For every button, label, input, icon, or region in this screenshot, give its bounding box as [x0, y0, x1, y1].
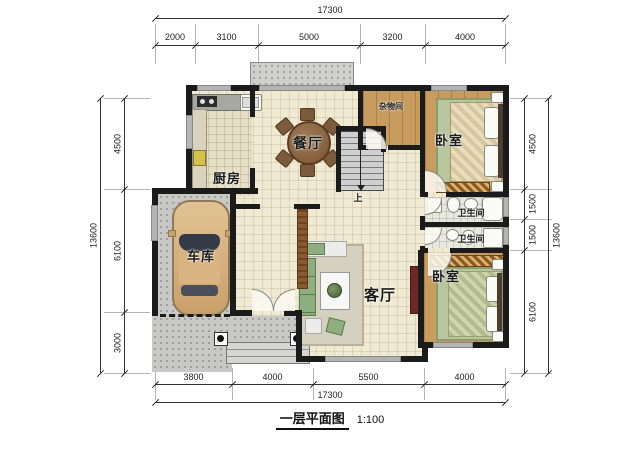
dim-top-seg2: 5000	[258, 32, 360, 42]
dim-bottom-seg0: 3800	[155, 372, 232, 382]
dim-right-seg0: 4500	[527, 98, 538, 189]
dim-bottom-seg3: 4000	[424, 372, 505, 382]
pillow	[484, 107, 499, 139]
headboard	[497, 273, 502, 333]
wall	[450, 248, 509, 253]
dining-chair	[300, 164, 315, 177]
wall	[294, 204, 320, 209]
dim-bottom-seg1: 4000	[232, 372, 313, 382]
dim-top-seg4: 4000	[425, 32, 505, 42]
cooktop-burner	[200, 99, 205, 104]
wall	[250, 168, 255, 194]
dim-line	[155, 18, 505, 19]
wall	[503, 85, 509, 348]
wall	[422, 342, 428, 362]
dim-left-seg2: 3000	[112, 312, 123, 373]
car-mirror	[168, 230, 176, 237]
dim-left-total: 13600	[88, 98, 99, 373]
dim-bottom-total: 17300	[155, 390, 505, 400]
wall	[446, 192, 509, 197]
wall	[418, 250, 424, 348]
extension-line	[104, 98, 150, 99]
dim-left-seg1: 6100	[112, 189, 123, 312]
window	[432, 86, 466, 90]
kitchen-appliance	[193, 150, 206, 166]
dim-line	[155, 402, 505, 403]
dining-chair	[300, 108, 315, 121]
wall	[296, 356, 330, 362]
wall	[420, 192, 428, 197]
plan-scale: 1:100	[357, 414, 385, 426]
dim-line	[548, 98, 549, 373]
wall	[420, 248, 428, 253]
extension-line	[104, 312, 150, 313]
porch-column	[217, 335, 224, 342]
label-kitchen: 厨房	[204, 168, 250, 187]
window	[504, 228, 508, 244]
dim-line	[524, 98, 525, 373]
car-rear-window	[181, 285, 218, 296]
wall	[236, 310, 252, 316]
label-bathroom-top: 卫生间	[442, 206, 500, 219]
dim-line	[155, 384, 505, 385]
label-dining: 餐厅	[277, 133, 339, 153]
wall	[425, 222, 509, 227]
dim-right-total: 13600	[551, 98, 562, 373]
wall	[358, 85, 363, 150]
dim-left-seg0: 4500	[112, 98, 123, 189]
window	[434, 343, 472, 347]
label-bathroom-bottom: 卫生间	[442, 232, 500, 245]
wall	[336, 126, 386, 131]
plant	[327, 283, 342, 298]
tick	[502, 399, 509, 406]
floor-plan: 17300 2000 3100 5000 3200 4000 13600 450…	[0, 0, 640, 453]
label-stairs-up: 上	[350, 191, 366, 204]
wall	[236, 204, 260, 209]
wall	[152, 188, 258, 194]
window	[187, 116, 192, 148]
label-bedroom-top: 卧室	[428, 130, 470, 149]
dim-line	[155, 45, 505, 46]
wood-pillar	[297, 209, 308, 289]
dim-top-total: 17300	[155, 5, 505, 15]
label-bedroom-bottom: 卧室	[424, 266, 468, 285]
window	[152, 206, 157, 240]
cooktop-burner	[209, 99, 214, 104]
window	[326, 357, 400, 361]
label-storage: 杂物间	[366, 101, 416, 112]
window	[504, 198, 508, 216]
extension-line	[104, 373, 150, 374]
dim-right-seg2: 1500	[527, 219, 538, 250]
dim-top-seg3: 3200	[360, 32, 425, 42]
dim-right-seg1: 1500	[527, 189, 538, 219]
exterior-patch	[428, 348, 508, 358]
wall	[230, 194, 236, 316]
armchair	[305, 318, 322, 334]
label-garage: 车库	[178, 246, 224, 265]
sofa-cushion	[307, 243, 325, 255]
wall	[296, 310, 302, 362]
plan-caption: 一层平面图 1:100	[155, 408, 505, 430]
dim-right-seg3: 6100	[527, 250, 538, 373]
dim-line	[100, 98, 101, 373]
dim-bottom-seg2: 5500	[313, 372, 424, 382]
window	[260, 86, 344, 90]
tick	[502, 15, 509, 22]
pillow	[484, 145, 499, 177]
dim-top-seg0: 2000	[155, 32, 195, 42]
window	[198, 86, 230, 90]
dim-line	[124, 98, 125, 373]
garage-door	[160, 314, 230, 317]
dim-top-seg1: 3100	[195, 32, 258, 42]
label-living: 客厅	[350, 284, 410, 305]
extension-line	[104, 189, 150, 190]
wall	[250, 91, 255, 117]
plan-title: 一层平面图	[276, 408, 349, 430]
